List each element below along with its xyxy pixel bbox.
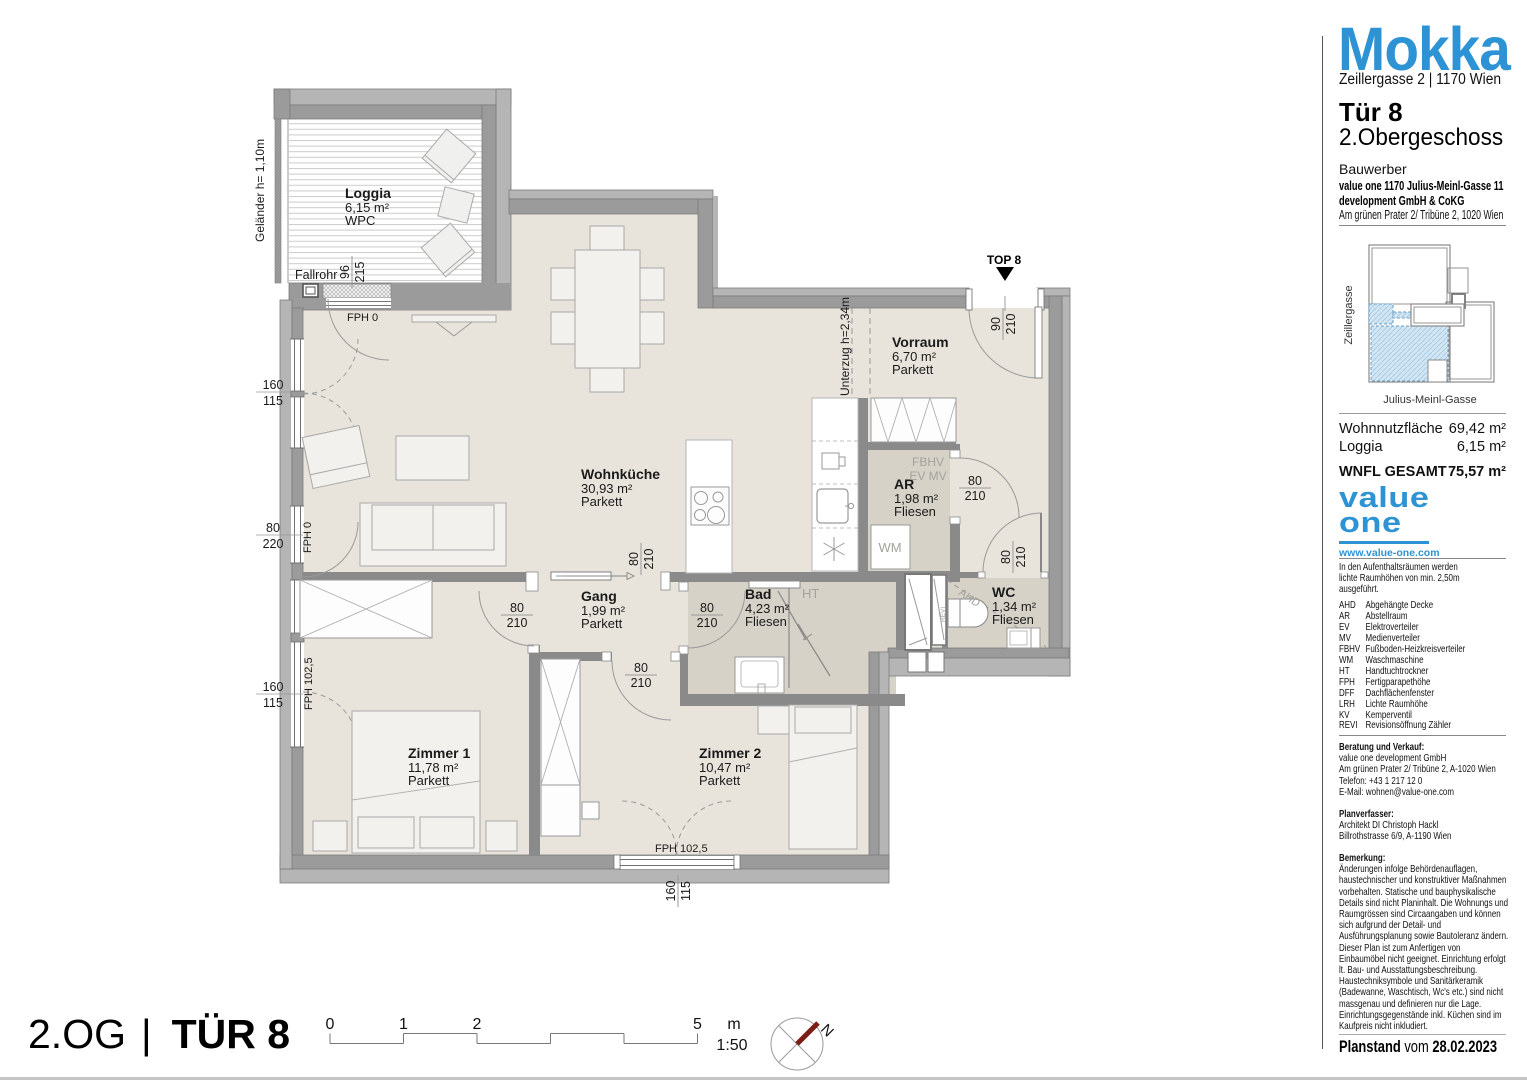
svg-text:1: 1: [399, 1016, 408, 1033]
svg-text:215: 215: [353, 262, 367, 283]
svg-text:Bad: Bad: [745, 586, 771, 602]
svg-text:FPH 102,5: FPH 102,5: [655, 843, 708, 855]
svg-text:Loggia: Loggia: [345, 185, 391, 201]
svg-text:Parkett: Parkett: [581, 494, 623, 509]
svg-text:Parkett: Parkett: [408, 773, 450, 788]
svg-text:220: 220: [263, 537, 284, 551]
svg-text:1:50: 1:50: [716, 1037, 747, 1054]
svg-text:160: 160: [263, 680, 284, 694]
svg-text:115: 115: [263, 696, 283, 710]
svg-text:Zeillergasse: Zeillergasse: [1343, 285, 1355, 344]
svg-text:Julius-Meinl-Gasse: Julius-Meinl-Gasse: [1383, 394, 1477, 406]
svg-text:Zimmer 2: Zimmer 2: [699, 745, 761, 761]
svg-text:WC: WC: [992, 584, 1015, 600]
svg-text:0: 0: [326, 1016, 335, 1033]
svg-text:Parkett: Parkett: [581, 616, 623, 631]
svg-text:Parkett: Parkett: [892, 362, 934, 377]
svg-text:210: 210: [697, 616, 718, 630]
svg-text:210: 210: [507, 616, 528, 630]
svg-text:90: 90: [989, 317, 1003, 331]
svg-text:80: 80: [266, 521, 280, 535]
svg-text:REVI: REVI: [940, 607, 947, 622]
svg-text:Fliesen: Fliesen: [745, 614, 787, 629]
svg-text:Wohnküche: Wohnküche: [581, 466, 660, 482]
svg-text:EV MV: EV MV: [909, 469, 946, 483]
svg-text:210: 210: [1014, 547, 1028, 568]
svg-text:2: 2: [473, 1016, 482, 1033]
svg-text:210: 210: [642, 549, 656, 570]
svg-text:Unterzug h=2,34m: Unterzug h=2,34m: [838, 297, 852, 396]
svg-text:80: 80: [999, 550, 1013, 564]
svg-text:96: 96: [338, 265, 352, 279]
svg-text:FPH 0: FPH 0: [347, 312, 378, 324]
svg-text:Parkett: Parkett: [699, 773, 741, 788]
svg-text:m: m: [727, 1016, 740, 1033]
svg-text:FPH 0: FPH 0: [302, 522, 314, 553]
svg-text:80: 80: [627, 552, 641, 566]
svg-text:Vorraum: Vorraum: [892, 334, 949, 350]
svg-text:HT: HT: [802, 586, 819, 601]
svg-text:210: 210: [1004, 314, 1018, 335]
svg-text:Gang: Gang: [581, 588, 617, 604]
svg-text:160: 160: [263, 378, 284, 392]
svg-text:115: 115: [263, 394, 283, 408]
svg-text:210: 210: [631, 676, 652, 690]
svg-text:TOP 8: TOP 8: [987, 253, 1022, 267]
svg-text:FPH 102,5: FPH 102,5: [303, 657, 315, 710]
svg-text:115: 115: [679, 881, 693, 901]
svg-text:210: 210: [965, 489, 986, 503]
svg-text:80: 80: [700, 601, 714, 615]
svg-text:80: 80: [968, 474, 982, 488]
svg-text:WPC: WPC: [345, 213, 375, 228]
svg-text:160: 160: [664, 881, 678, 902]
svg-text:Geländer h= 1,10m: Geländer h= 1,10m: [253, 139, 267, 242]
svg-text:Zimmer 1: Zimmer 1: [408, 745, 470, 761]
svg-text:WM: WM: [878, 540, 901, 555]
svg-text:Fliesen: Fliesen: [894, 504, 936, 519]
svg-text:FBHV: FBHV: [912, 455, 944, 469]
svg-text:5: 5: [693, 1016, 702, 1033]
svg-text:80: 80: [634, 661, 648, 675]
svg-text:80: 80: [510, 601, 524, 615]
svg-text:Fallrohr: Fallrohr: [295, 268, 337, 282]
svg-text:N: N: [817, 1021, 837, 1041]
svg-text:Fliesen: Fliesen: [992, 612, 1034, 627]
